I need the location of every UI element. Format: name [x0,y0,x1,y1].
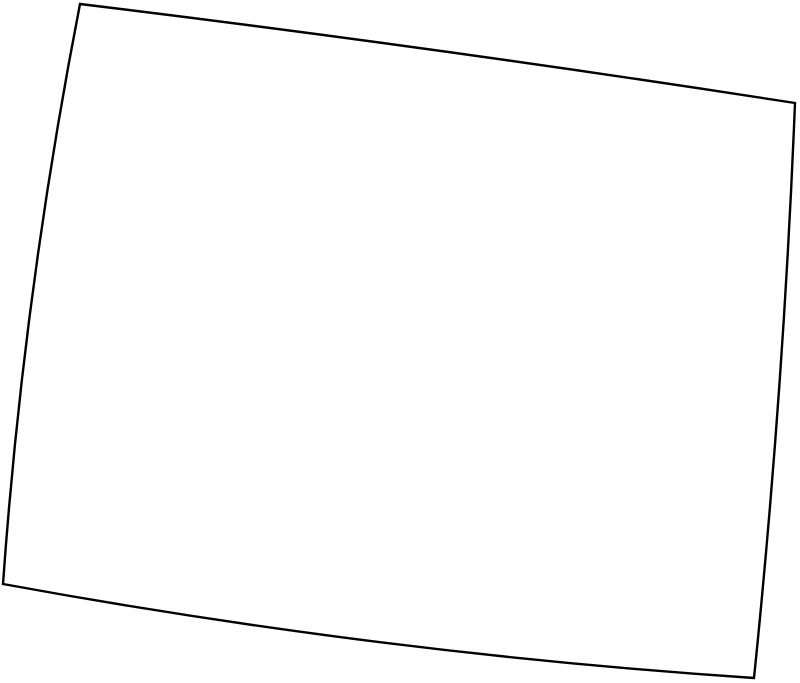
state-outline-svg [0,0,800,683]
state-outline-path [3,4,795,678]
map-canvas [0,0,800,683]
